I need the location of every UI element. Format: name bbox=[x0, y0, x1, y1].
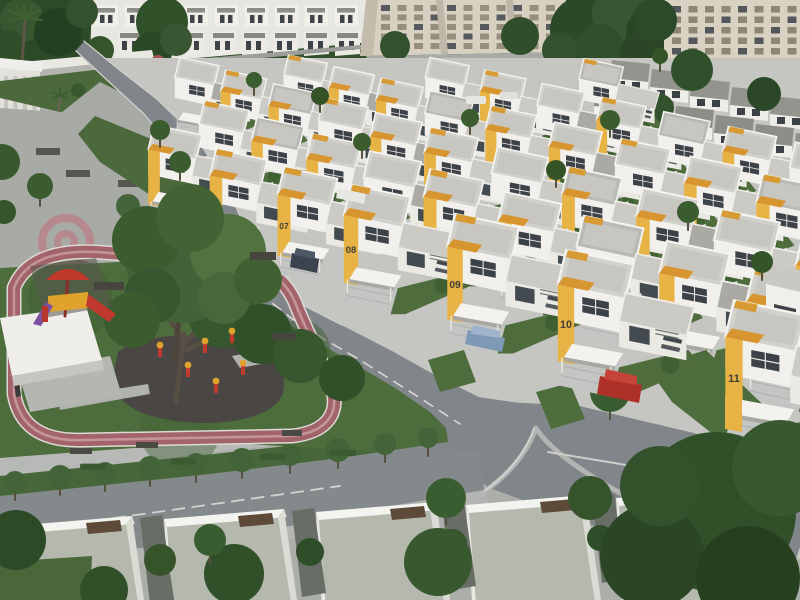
svg-text:09: 09 bbox=[449, 280, 461, 291]
svg-text:10: 10 bbox=[560, 319, 572, 331]
svg-text:08: 08 bbox=[346, 245, 357, 256]
svg-text:07: 07 bbox=[279, 221, 289, 231]
svg-text:11: 11 bbox=[728, 373, 740, 385]
